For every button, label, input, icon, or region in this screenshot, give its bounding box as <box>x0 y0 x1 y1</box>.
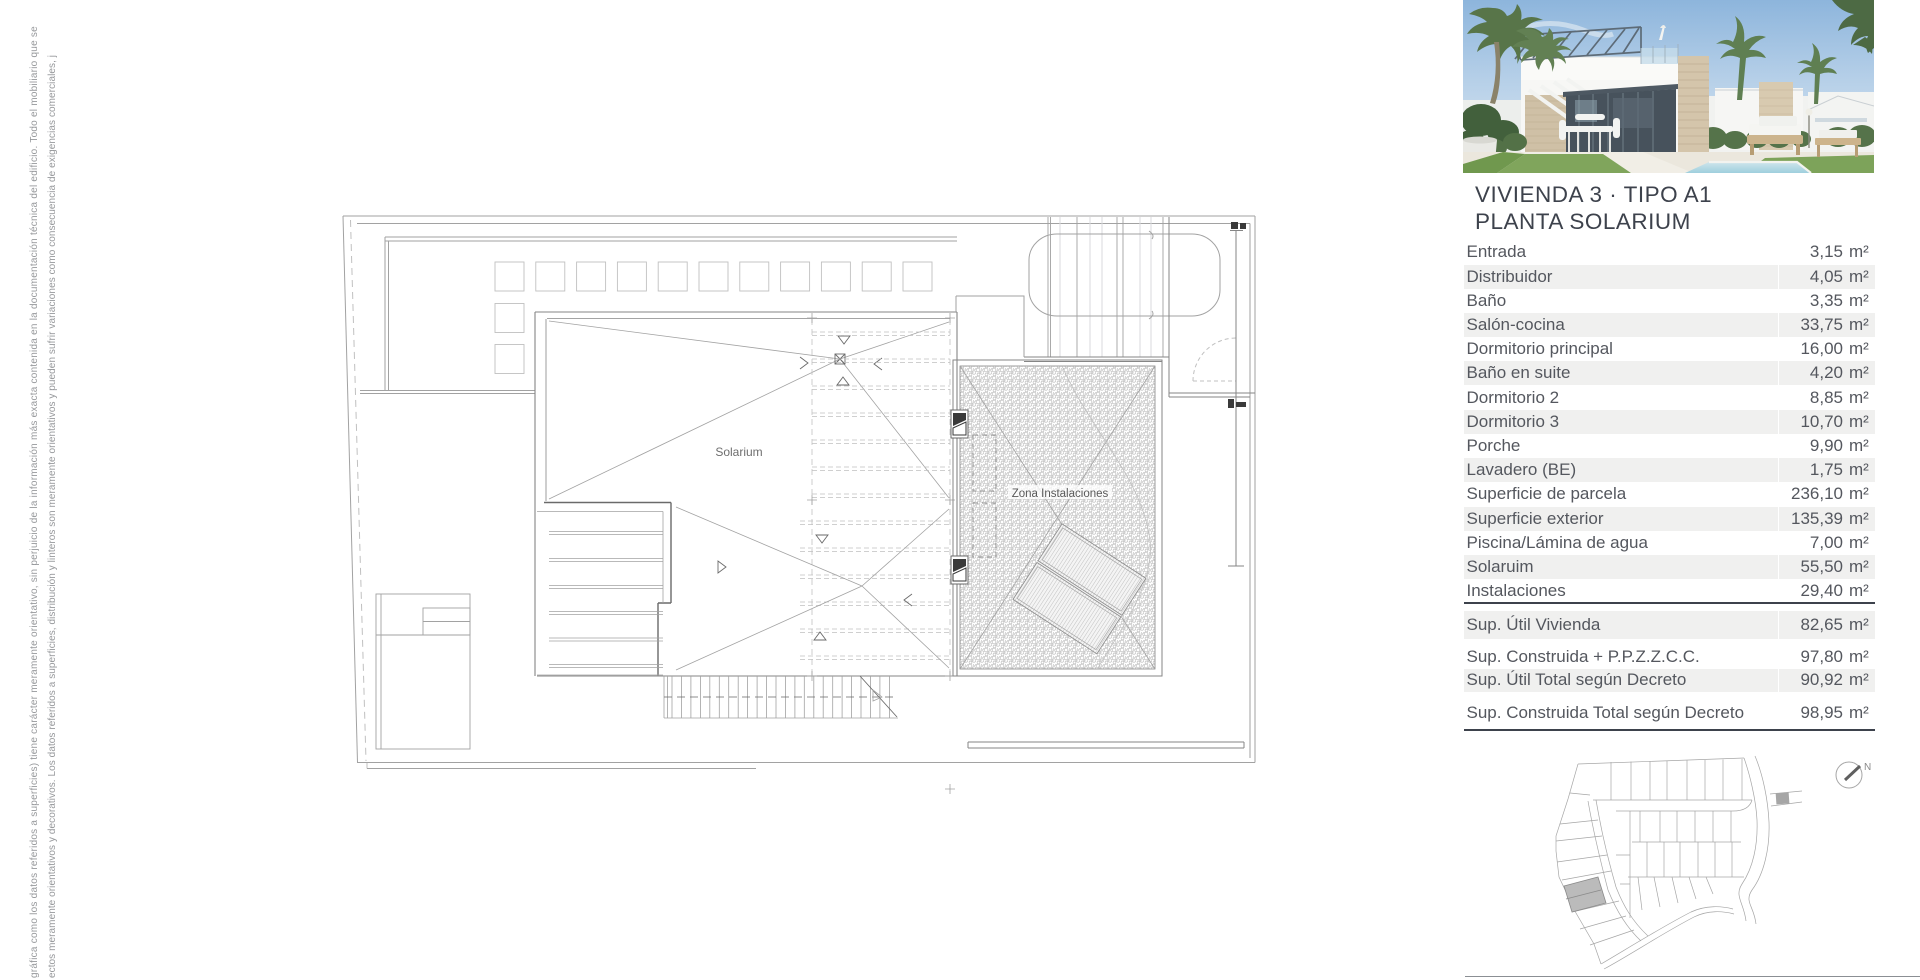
svg-text:Zona Instalaciones: Zona Instalaciones <box>1012 488 1109 500</box>
svg-text:N: N <box>1864 762 1871 773</box>
svg-text:Solarium: Solarium <box>715 445 762 459</box>
